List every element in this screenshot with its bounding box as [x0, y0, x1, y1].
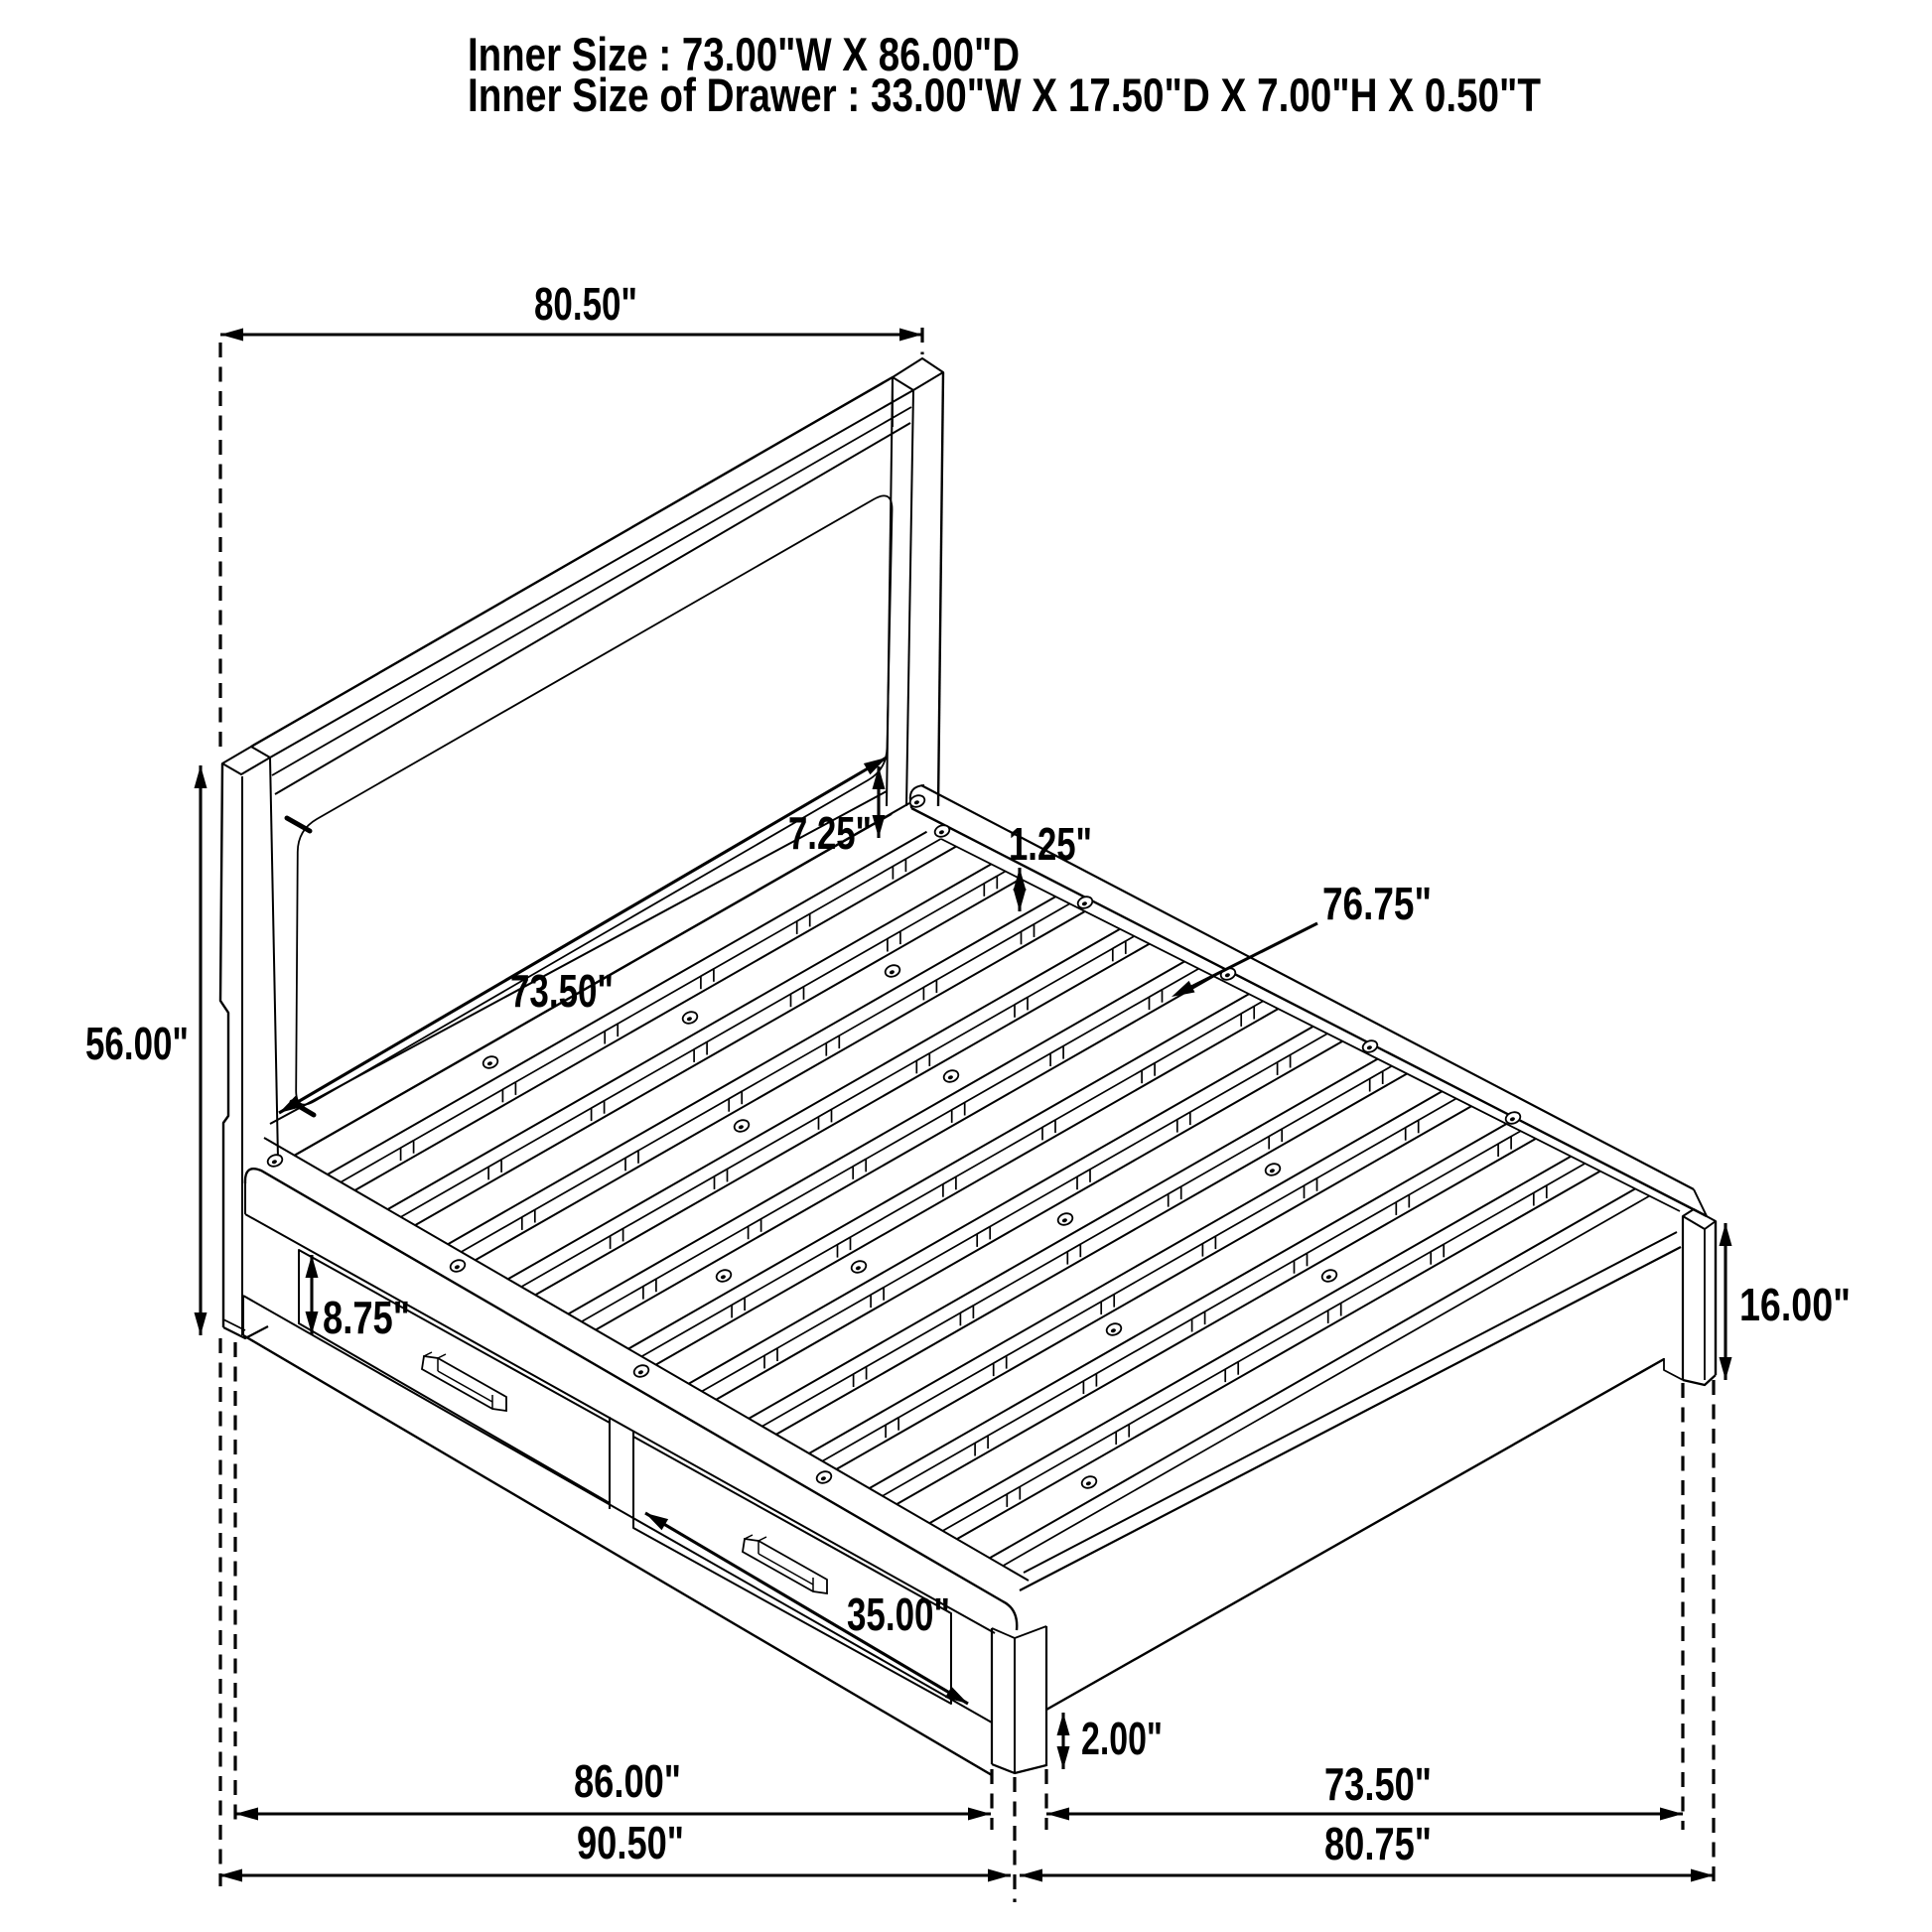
- svg-text:Inner Size of Drawer : 33.00"W: Inner Size of Drawer : 33.00"W X 17.50"D…: [468, 69, 1541, 121]
- svg-text:35.00": 35.00": [847, 1588, 950, 1640]
- svg-text:8.75": 8.75": [323, 1292, 410, 1343]
- svg-text:56.00": 56.00": [85, 1018, 189, 1069]
- svg-text:73.50": 73.50": [510, 965, 614, 1017]
- svg-text:16.00": 16.00": [1739, 1279, 1851, 1330]
- svg-text:76.75": 76.75": [1322, 878, 1432, 929]
- svg-text:2.00": 2.00": [1081, 1713, 1163, 1764]
- svg-text:73.50": 73.50": [1324, 1758, 1432, 1810]
- svg-text:1.25": 1.25": [1009, 818, 1092, 870]
- svg-text:7.25": 7.25": [788, 807, 872, 859]
- svg-text:86.00": 86.00": [574, 1755, 681, 1807]
- svg-text:80.50": 80.50": [534, 278, 637, 330]
- svg-text:80.75": 80.75": [1324, 1818, 1432, 1869]
- svg-text:90.50": 90.50": [577, 1817, 684, 1868]
